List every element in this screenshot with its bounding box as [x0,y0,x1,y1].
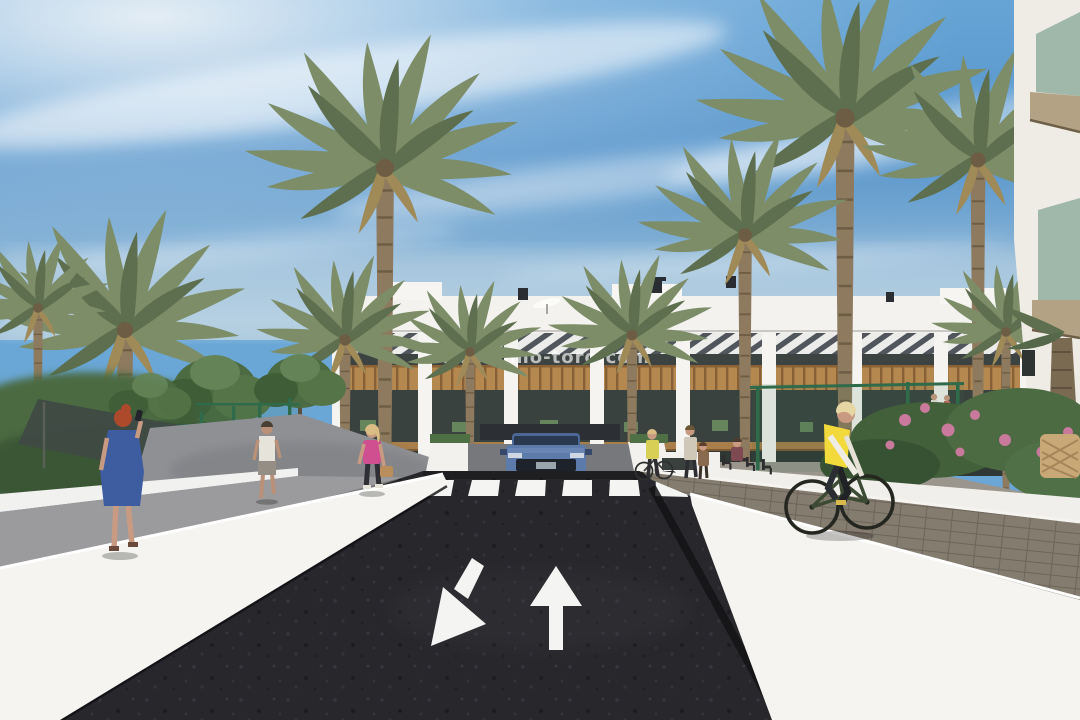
child [698,451,709,466]
wicker-chair [1040,434,1080,478]
license-plate [536,462,556,469]
yellow-top [646,440,659,459]
white-tank [259,436,275,461]
scene-architectural-render: www.immo-toro.com [0,0,1080,720]
pink-top [363,440,381,464]
handbag [380,466,393,477]
